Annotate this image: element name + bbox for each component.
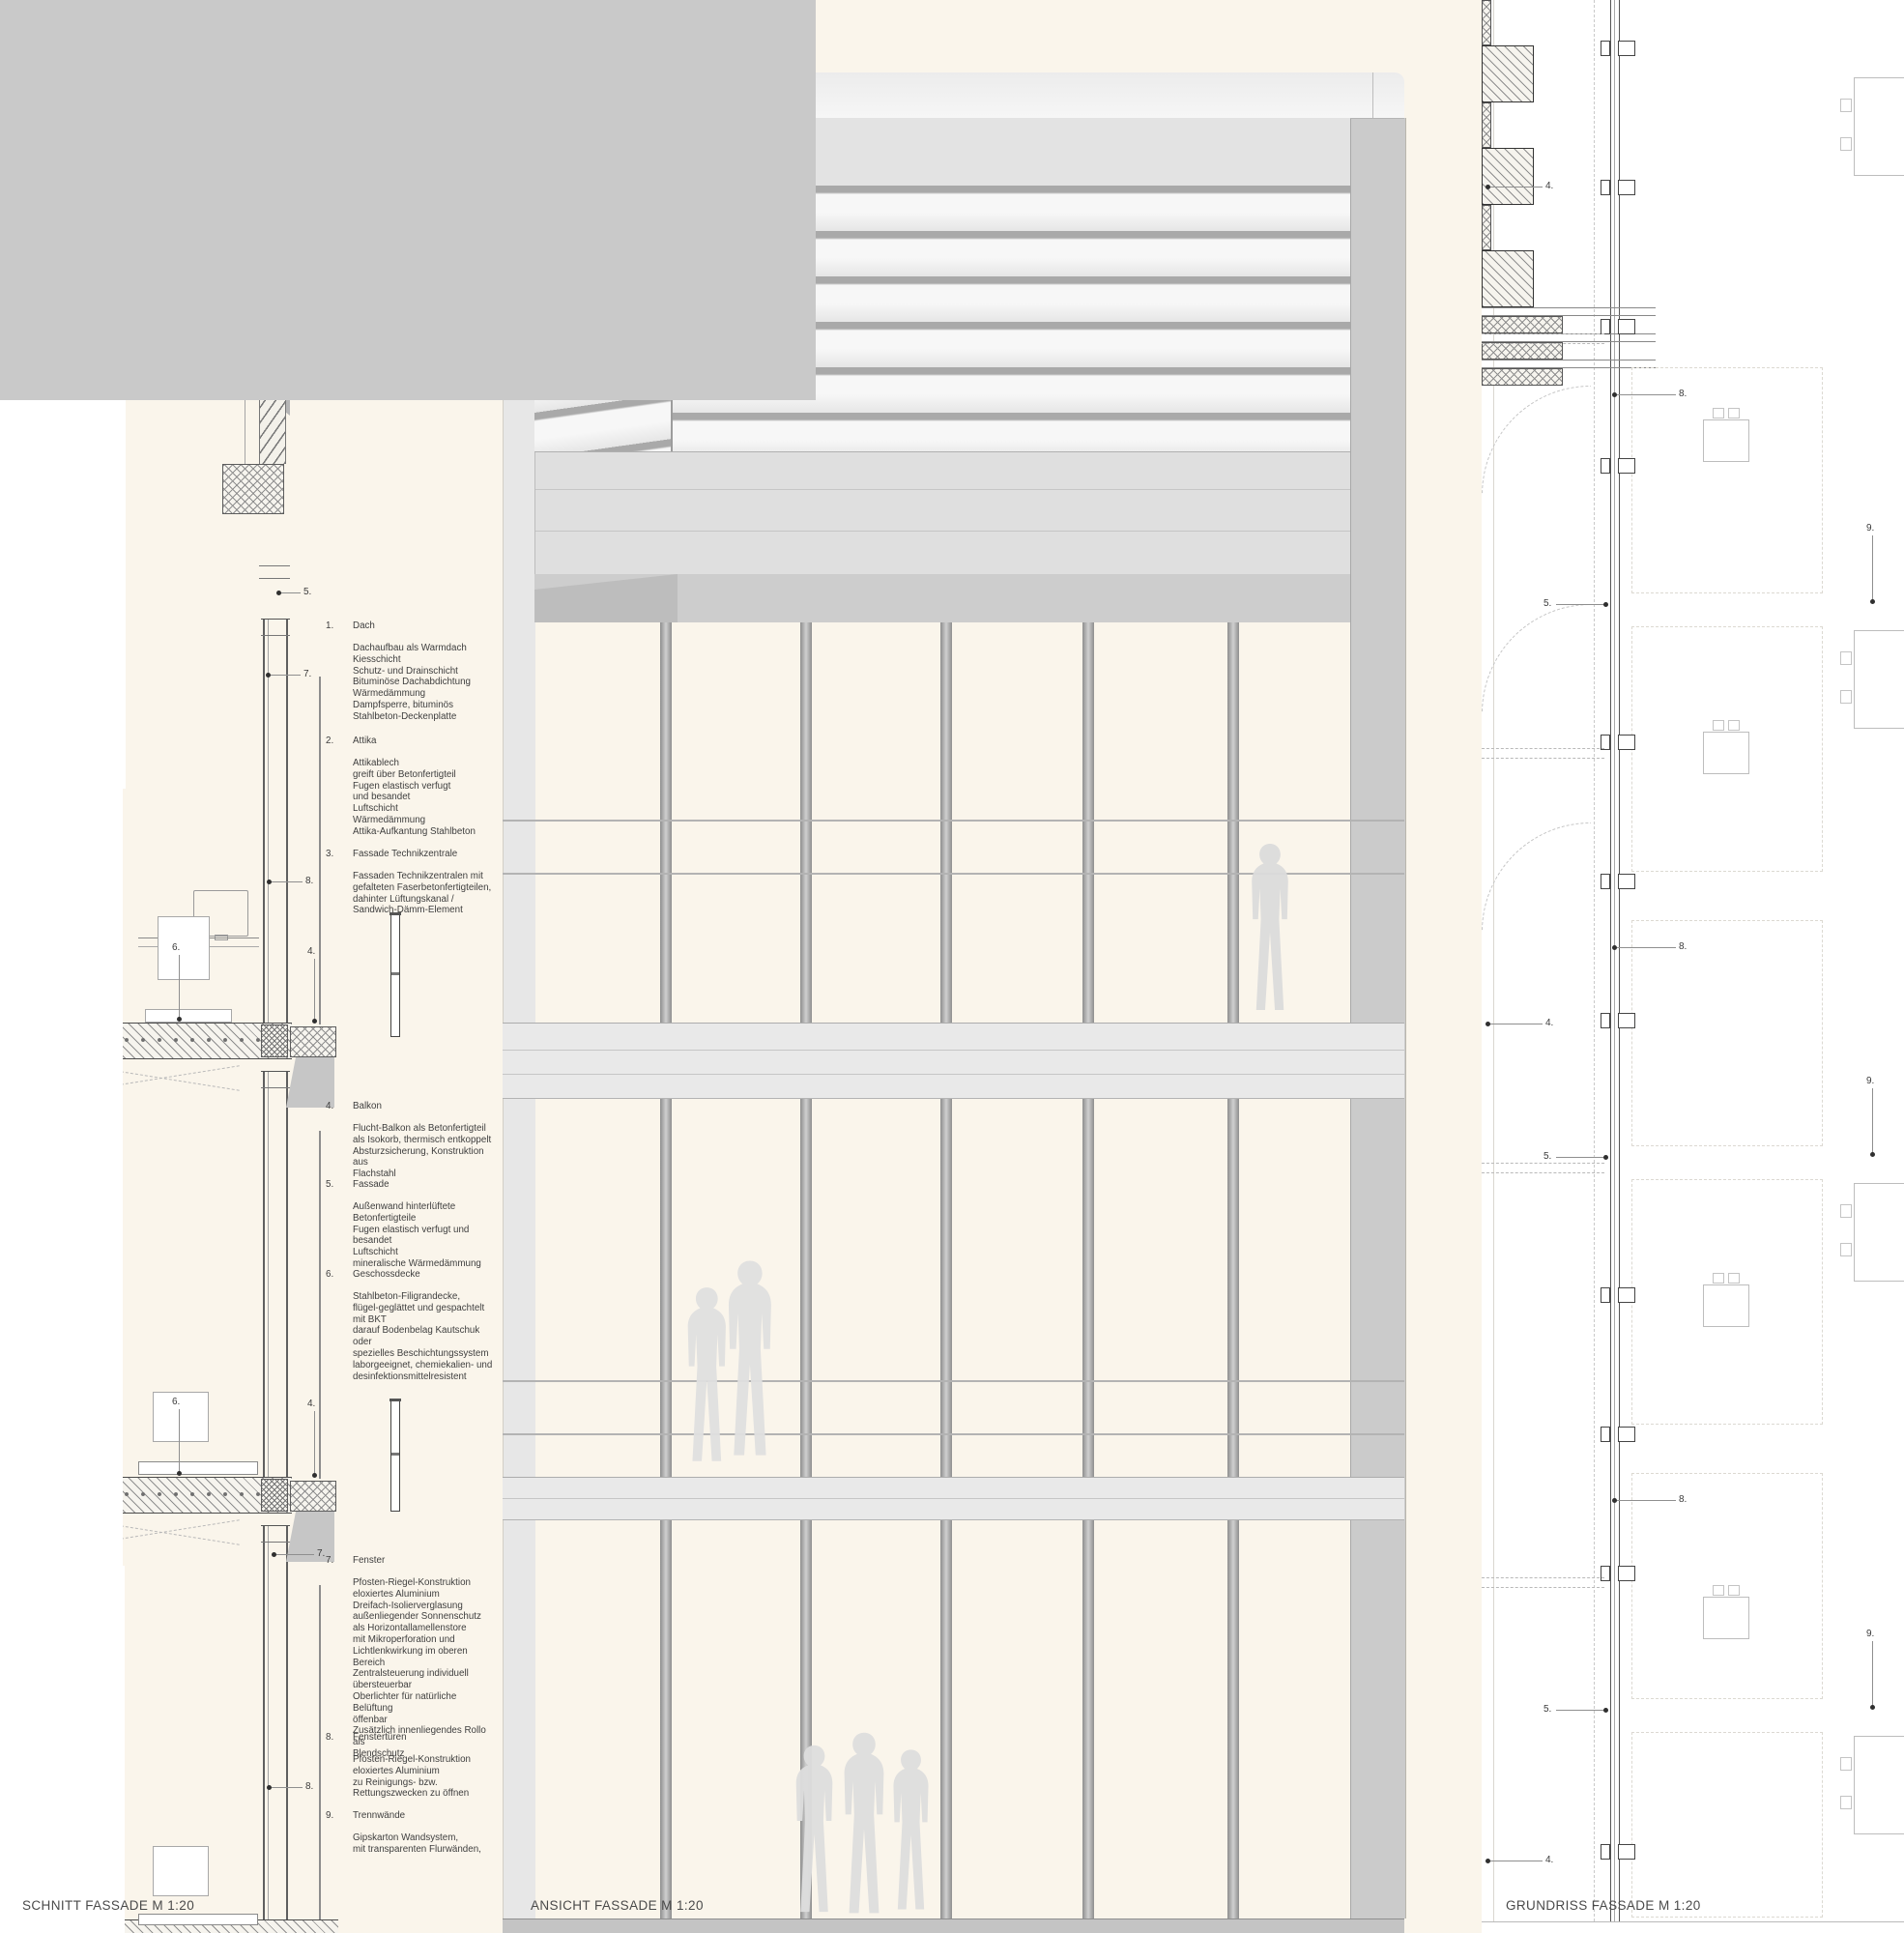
callout-leader (1614, 1500, 1676, 1501)
callout-dot (1486, 1859, 1490, 1863)
callout-leader (1556, 604, 1605, 605)
callout-dot (1870, 1152, 1875, 1157)
callout-dot (1612, 1498, 1617, 1503)
callout-label: 4. (1545, 181, 1553, 191)
callout-label: 8. (1679, 389, 1687, 399)
callout-label: 8. (1679, 941, 1687, 952)
callout-dot (1870, 1705, 1875, 1710)
callout-label: 5. (1543, 1151, 1551, 1162)
callout-dot (1486, 1022, 1490, 1026)
callout-leader (1614, 394, 1676, 395)
callout-leader (1487, 187, 1543, 188)
plan-callout-layer: 4.4.4.8.8.8.5.5.5.9.9.9. (0, 0, 1904, 1933)
callout-dot (1486, 185, 1490, 189)
callout-label: 4. (1545, 1018, 1553, 1028)
callout-dot (1870, 599, 1875, 604)
callout-label: 9. (1866, 523, 1874, 534)
plan-caption: GRUNDRISS FASSADE M 1:20 (1506, 1898, 1701, 1913)
callout-label: 5. (1543, 1704, 1551, 1715)
callout-dot (1603, 602, 1608, 607)
callout-label: 9. (1866, 1629, 1874, 1639)
callout-label: 5. (1543, 598, 1551, 609)
callout-leader (1556, 1710, 1605, 1711)
callout-leader (1872, 1641, 1873, 1707)
elevation-caption: ANSICHT FASSADE M 1:20 (531, 1898, 704, 1913)
callout-dot (1612, 945, 1617, 950)
section-caption: SCHNITT FASSADE M 1:20 (22, 1898, 194, 1913)
callout-label: 4. (1545, 1855, 1553, 1865)
callout-leader (1872, 1088, 1873, 1154)
callout-leader (1556, 1157, 1605, 1158)
callout-leader (1487, 1024, 1543, 1024)
architectural-sheet: 1.2.3.5.7.8.6.4.6.4.7.8. 1.DachDachaufba… (0, 0, 1904, 1933)
callout-dot (1603, 1708, 1608, 1713)
callout-label: 8. (1679, 1494, 1687, 1505)
callout-dot (1603, 1155, 1608, 1160)
callout-label: 9. (1866, 1076, 1874, 1086)
callout-dot (1612, 392, 1617, 397)
callout-leader (1872, 535, 1873, 601)
callout-leader (1487, 1861, 1543, 1861)
callout-leader (1614, 947, 1676, 948)
